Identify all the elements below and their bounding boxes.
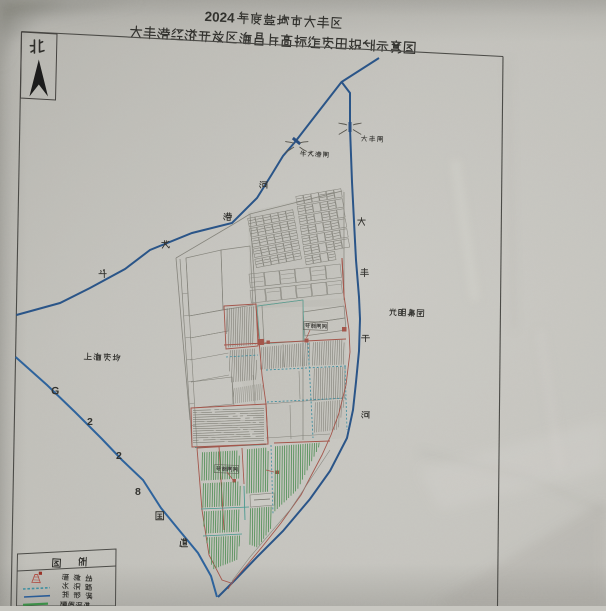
svg-text:2024: 2024 xyxy=(204,9,235,26)
svg-text:2: 2 xyxy=(116,450,122,462)
svg-text:2: 2 xyxy=(87,416,93,428)
svg-text:G: G xyxy=(51,385,60,397)
svg-text:8: 8 xyxy=(135,486,141,498)
